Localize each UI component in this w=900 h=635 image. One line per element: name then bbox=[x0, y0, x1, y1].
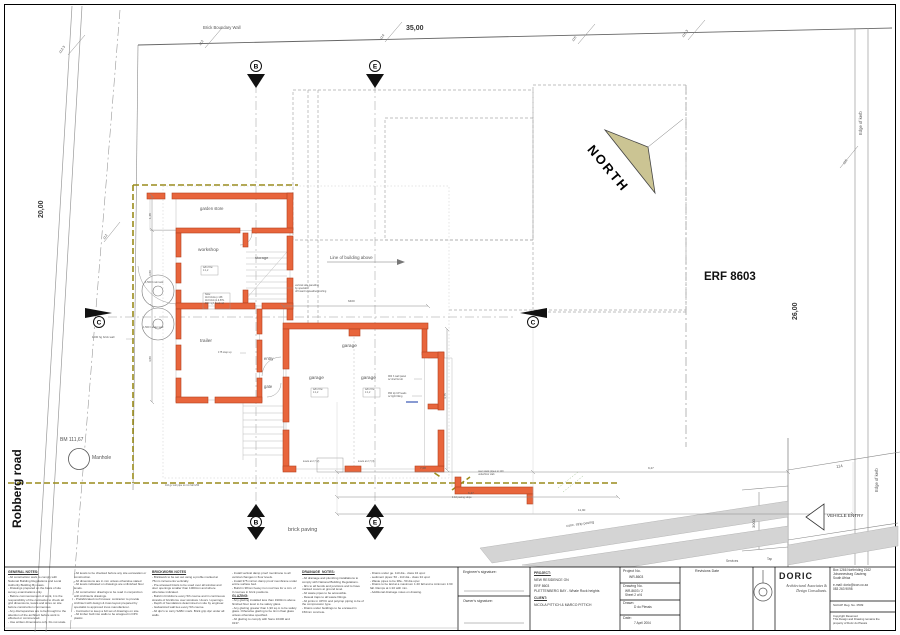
date-value: 7 April 2004 bbox=[634, 622, 651, 626]
general-notes-body: - All construction work to comply with N… bbox=[8, 576, 68, 625]
svg-text:E: E bbox=[373, 64, 378, 71]
ann-soil-pipe: 110 gv soil pipe to min fall 1/60 bbox=[165, 484, 199, 487]
section-marker-c-right: C bbox=[520, 308, 547, 328]
date-label: Date: bbox=[623, 616, 632, 620]
project-line-1: NEW RESIDENCE ON bbox=[534, 578, 569, 582]
section-lines bbox=[108, 84, 515, 510]
manhole-label: Manhole bbox=[92, 455, 111, 461]
ann-stack-pipes: over stack pipes to 110 underfloor slab bbox=[478, 470, 504, 476]
vehicle-entry-label: VEHICLE ENTRY bbox=[827, 513, 863, 519]
svg-text:E: E bbox=[373, 520, 378, 527]
general-notes-2: - All levels to be checked before any si… bbox=[74, 572, 148, 621]
brick-paving-label: brick paving bbox=[288, 527, 317, 534]
damp-notes-body: - Install vertical damp proof membrane t… bbox=[232, 572, 298, 595]
dim-garage-w: 6400 bbox=[348, 300, 355, 304]
ffl-box-workshop: w/b 2 bw 1:1,2 bbox=[203, 267, 212, 273]
room-label-storage: storage bbox=[255, 256, 268, 261]
dim-bottom-2: 6,47 bbox=[468, 492, 474, 496]
section-markers: B E C C B E bbox=[85, 61, 547, 541]
project-line-2: ERF 8603 bbox=[534, 584, 549, 588]
ann-levels-3: levels at 2,7 (3) bbox=[358, 461, 374, 464]
drainage-notes-body: - All drainage and plumbing installation… bbox=[302, 577, 364, 615]
ann-step-up: 175 step up bbox=[218, 351, 232, 354]
dim-left-1: 1,48 bbox=[149, 213, 153, 219]
room-label-garden-store: garden store bbox=[200, 206, 224, 211]
manhole-symbol bbox=[69, 449, 90, 470]
drawing-linework: B E C C B E bbox=[0, 0, 900, 635]
edge-of-kerb-2: Edge of kerb bbox=[874, 468, 879, 492]
svg-text:C: C bbox=[531, 320, 536, 327]
dim-right-height: 26,00 bbox=[792, 302, 800, 320]
dim-bottom-1b: 9,47 bbox=[648, 467, 654, 471]
section-marker-c-left: C bbox=[85, 308, 112, 328]
glazing-body: - Any glazing installed less than 1900mm… bbox=[232, 599, 298, 625]
conc-strip-paving bbox=[480, 501, 898, 567]
brickwork-notes-body: - Brickwork to be set out using a profil… bbox=[152, 576, 226, 617]
road-name-label: Robberg road bbox=[10, 449, 24, 528]
ann-wall-panel: 900 h wall panel w/ shelf & tub bbox=[388, 375, 406, 381]
ann-panelling: vertical side panelling by specialist of… bbox=[295, 284, 326, 293]
beacon-r2: 114 bbox=[836, 464, 843, 470]
edge-of-kerb-1: Edge of kerb bbox=[858, 111, 863, 135]
section-marker-e-bottom: E bbox=[366, 504, 384, 540]
annotation-leaders bbox=[126, 288, 583, 492]
dim-bottom-3: 11,90 bbox=[578, 509, 585, 513]
doric-copyright: Copyright Reserved This Design and Drawi… bbox=[833, 615, 880, 625]
dim-left-3: 4,80 bbox=[149, 356, 153, 362]
ann-rain-tank: 1,500 l rain tank bbox=[145, 281, 163, 284]
dim-vehicle-entry: 3000 bbox=[752, 519, 757, 528]
ffl-box-garage-2: w/b 2 bw 1:1,2 bbox=[313, 389, 322, 395]
room-label-entry: entry bbox=[264, 356, 273, 361]
ann-paving-slope: 1:10 paving slope bbox=[452, 496, 472, 499]
client-name: NICOLA PITTICH & MARCO PITTICH bbox=[534, 603, 591, 607]
vehicle-entry-arrow bbox=[806, 504, 824, 530]
sheet-no-value: Sheet 2 of 6 bbox=[625, 594, 642, 598]
drawn-value: D du Plessis bbox=[634, 606, 652, 610]
svg-text:B: B bbox=[254, 64, 259, 71]
drainage-notes-2: - Drains under ge. 110 dia - class 34 up… bbox=[370, 572, 454, 595]
line-of-building-label: Line of building above bbox=[330, 255, 373, 260]
doric-logo-icon bbox=[754, 570, 772, 601]
room-label-garage-2: garage bbox=[309, 376, 324, 382]
engineer-signature-label: Engineer's signature: bbox=[463, 570, 497, 574]
water-tanks bbox=[142, 275, 174, 340]
boundary-wall-label: Brick Boundary Wall bbox=[203, 25, 241, 30]
note-box-workshop: Note: 110 bricks p 138 110 brick pl & BT… bbox=[205, 294, 224, 306]
project-no-label: Project No. bbox=[623, 569, 641, 573]
drawn-label: Drawn: bbox=[623, 601, 634, 605]
tap-label: Tap bbox=[767, 558, 772, 562]
ann-rw-pipe: RW dp UP leads w/ light fitting bbox=[388, 392, 406, 398]
upper-floor-outline bbox=[293, 85, 686, 323]
doric-tagline: Architectural Associates & Design Consul… bbox=[779, 584, 827, 593]
dim-bottom-1: 7,08 bbox=[420, 467, 426, 471]
wall-detail-lines bbox=[138, 199, 452, 487]
svg-text:C: C bbox=[97, 320, 102, 327]
drainage-notes-title: DRAINAGE NOTES: bbox=[302, 570, 335, 574]
room-label-gate: gate bbox=[264, 384, 272, 389]
doric-contact: e-mail: doric@icon.co.za 083 263 9098 bbox=[833, 584, 868, 592]
project-line-3: PLETTENBERG BAY - Whale Rock heights bbox=[534, 589, 599, 593]
section-marker-e-top: E bbox=[366, 61, 384, 89]
doric-reg: SACAP Reg. No. 0509 bbox=[833, 604, 863, 608]
project-no-value: WR-8603 bbox=[629, 575, 643, 579]
project-label: PROJECT: bbox=[534, 571, 551, 575]
dim-garage-h: 4,75 bbox=[444, 393, 448, 399]
services-label: Services bbox=[726, 560, 738, 564]
dim-left-height: 20,00 bbox=[38, 200, 46, 218]
ffl-box-garage-3: w/b 2 bw 1:1,2 bbox=[365, 389, 374, 395]
ann-water-tank: 1,500 l water tank bbox=[143, 326, 163, 329]
doric-logo-name: DORIC bbox=[779, 571, 813, 582]
room-label-garage-3: garage bbox=[361, 376, 376, 382]
benchmark-label: BM 111,67 bbox=[60, 437, 83, 443]
section-marker-b-bottom: B bbox=[247, 504, 265, 540]
erf-number-label: ERF 8603 bbox=[704, 271, 756, 285]
room-label-trailer: trailer bbox=[200, 339, 212, 345]
general-notes-title: GENERAL NOTES: bbox=[8, 570, 38, 574]
doric-address: Box 1266 Northriding 2162 Johannesburg G… bbox=[833, 569, 871, 581]
svg-text:B: B bbox=[254, 520, 259, 527]
site-plan-sheet: B E C C B E bbox=[0, 0, 900, 635]
section-marker-b-top: B bbox=[247, 61, 265, 89]
owner-signature-label: Owner's signature: bbox=[463, 599, 493, 603]
ann-levels-2: levels at 2,7 (2) bbox=[303, 461, 319, 464]
drawing-no-label: Drawing No. bbox=[623, 584, 643, 588]
dim-top-width: 35,00 bbox=[406, 25, 424, 33]
room-label-garage-1: garage bbox=[342, 344, 357, 350]
revisions-label: Revisions Date bbox=[695, 569, 719, 573]
client-label: CLIENT: bbox=[534, 596, 547, 600]
ann-brick-wall: 1200 hg brick wall bbox=[92, 336, 114, 339]
room-label-workshop: workshop bbox=[198, 248, 219, 254]
dim-left-2: 3,80 bbox=[149, 270, 153, 276]
brickwork-notes-title: BRICKWORK NOTES bbox=[152, 570, 186, 574]
